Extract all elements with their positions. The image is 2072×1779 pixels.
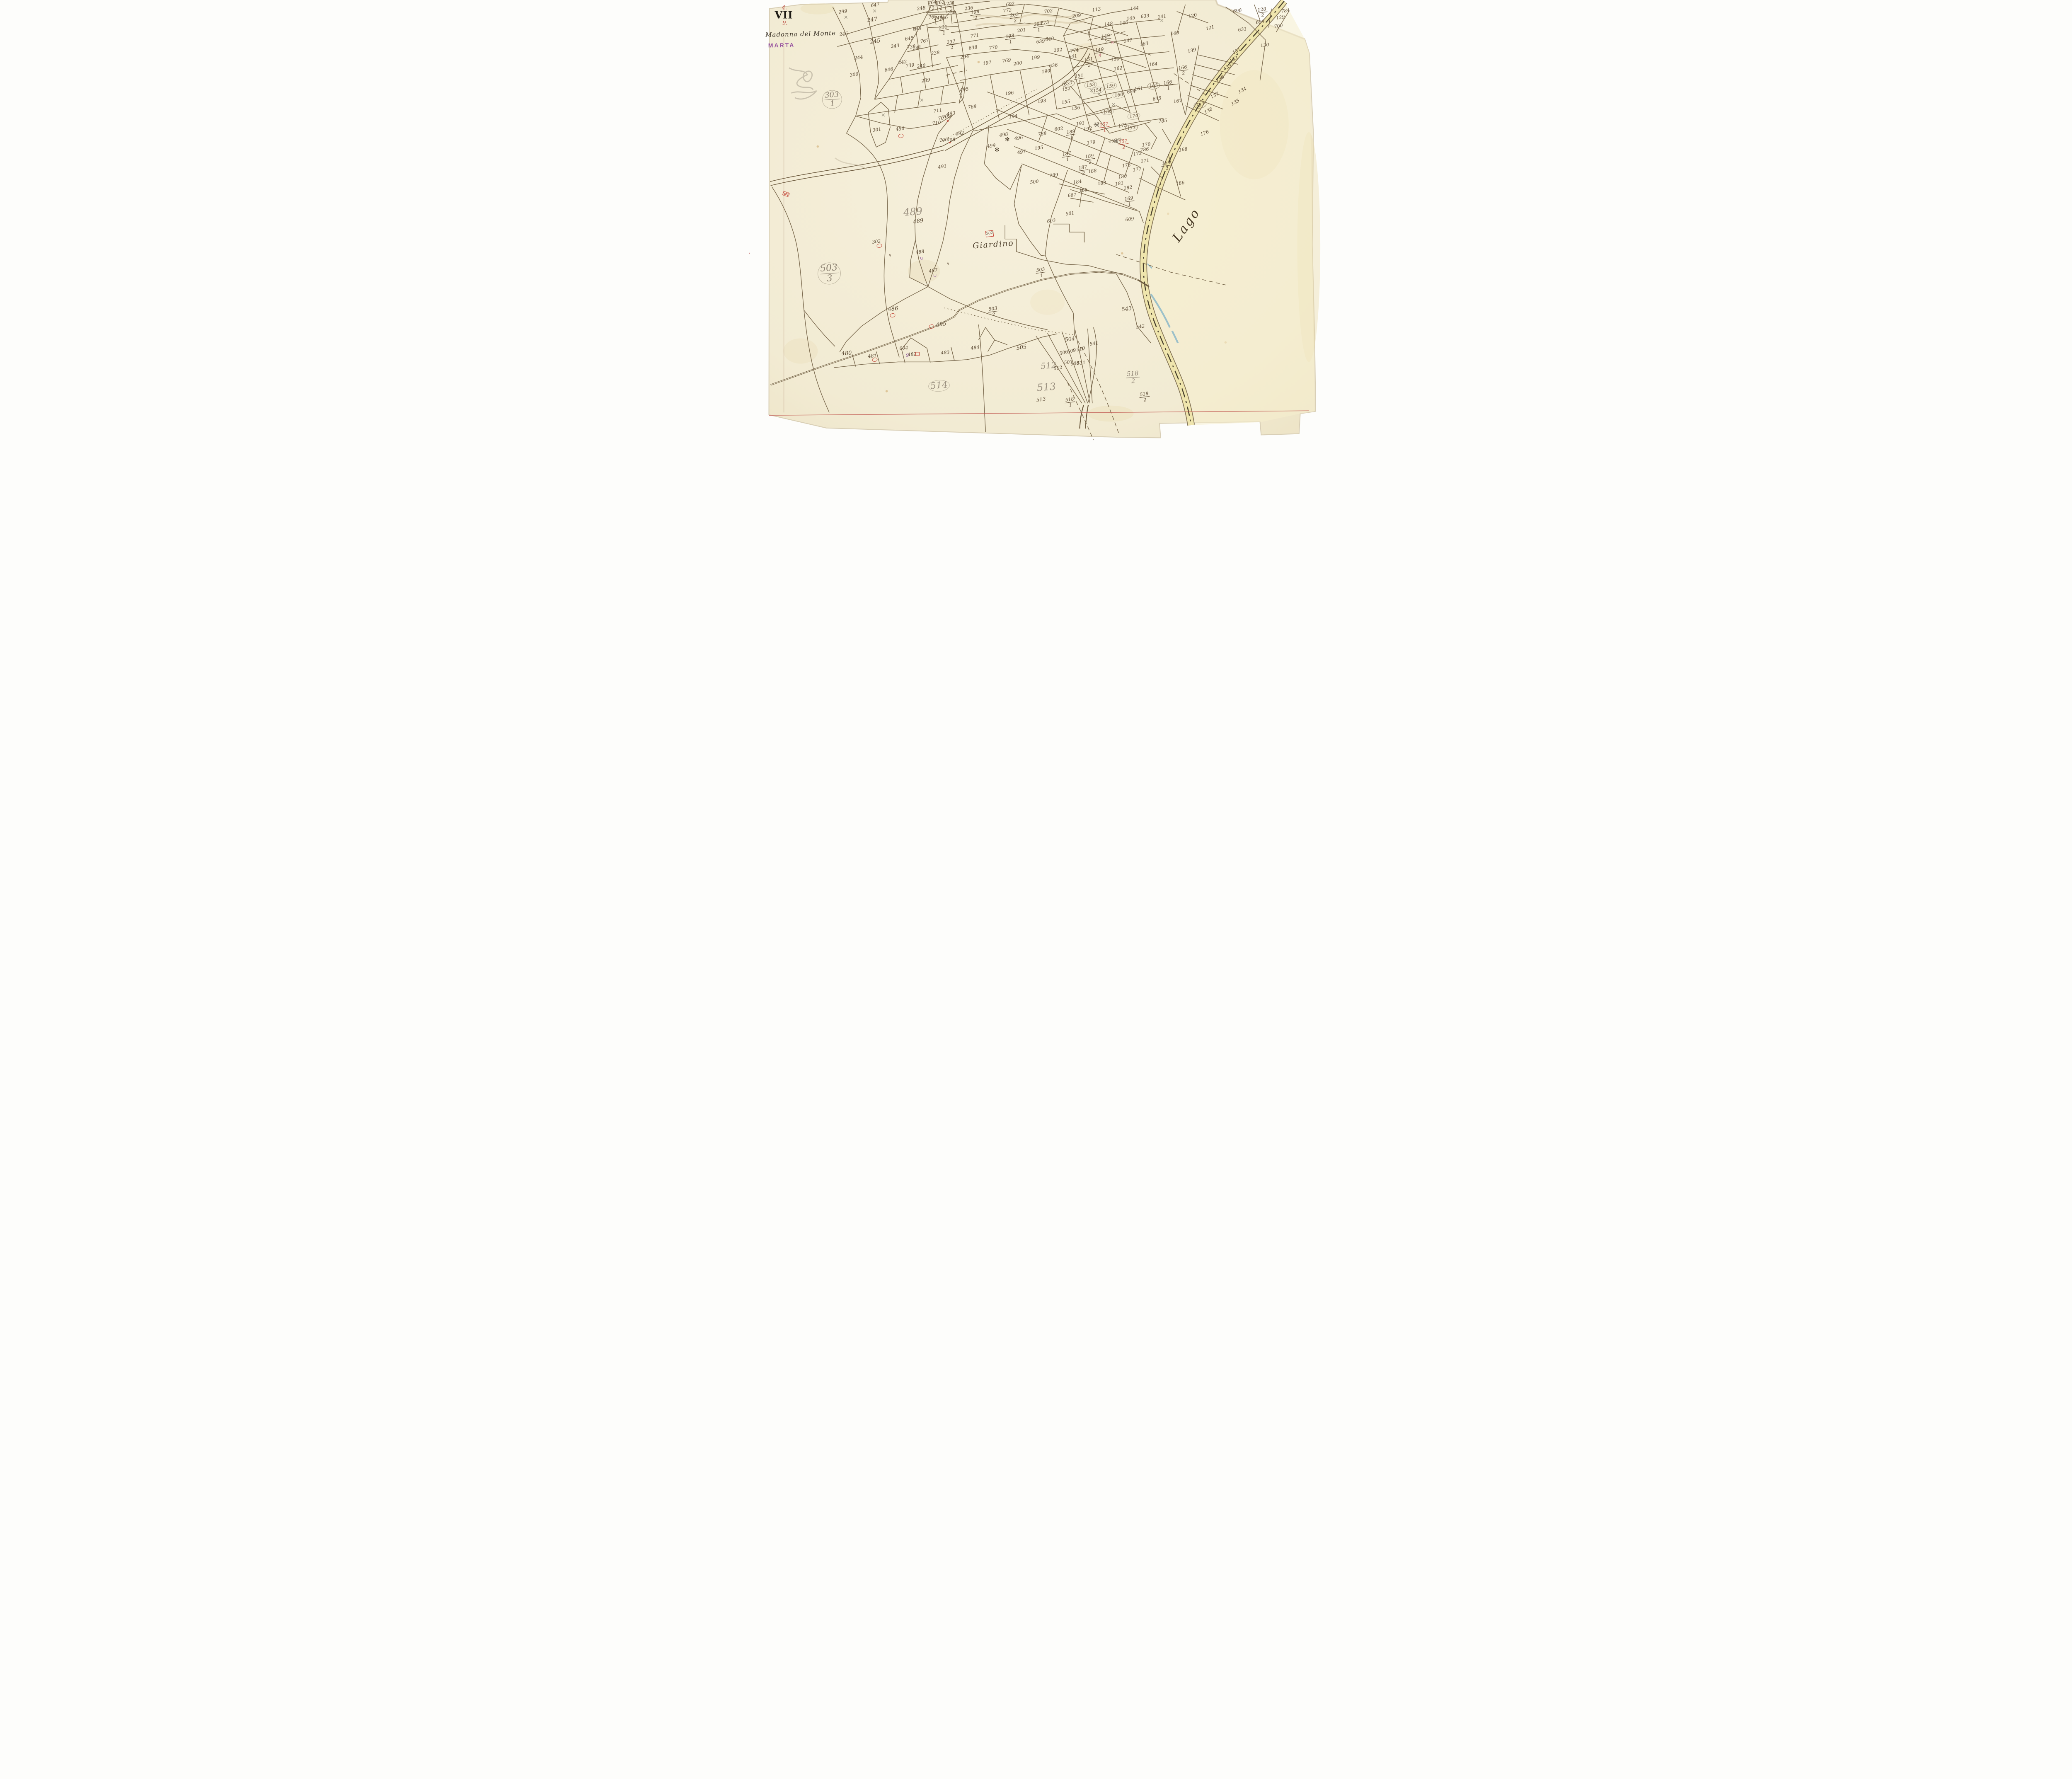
plate-number-bottom: 9. xyxy=(782,20,787,26)
map-drawing xyxy=(749,0,1323,445)
sheet-title: Madonna del Monte xyxy=(765,29,836,38)
plate-roman-numeral: VII xyxy=(775,9,793,21)
cadastral-map-sheet: 4. VII 9. Madonna del Monte MARTA Giardi… xyxy=(749,0,1323,445)
marta-stamp: MARTA xyxy=(768,42,795,49)
